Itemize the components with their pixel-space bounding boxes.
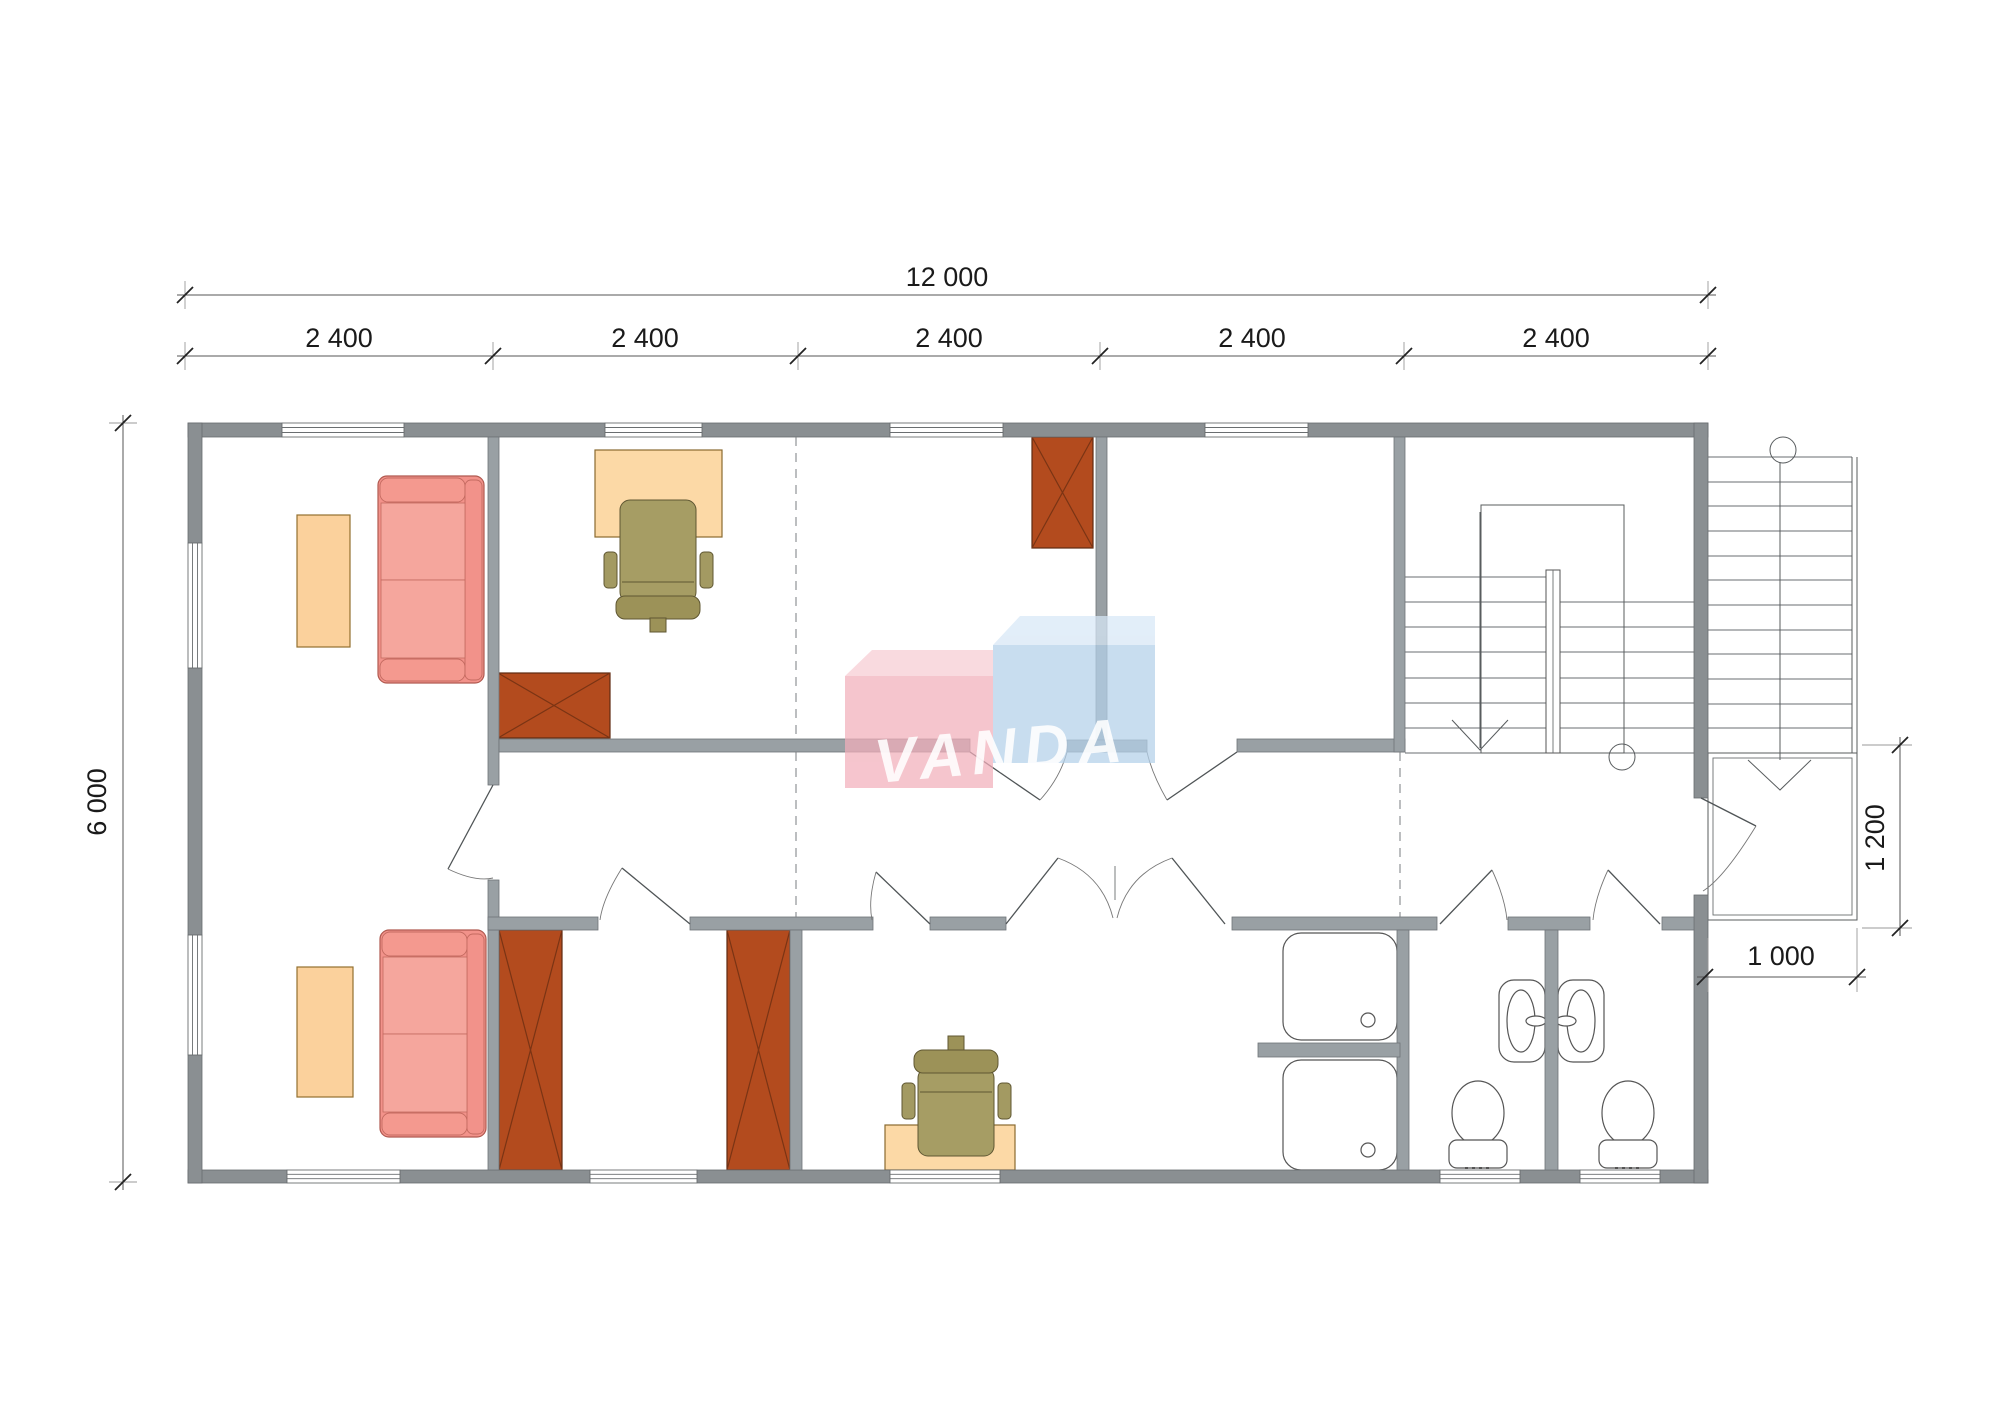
entry-landing xyxy=(1708,753,1857,920)
internal-staircase xyxy=(1405,505,1694,770)
vanda-watermark: VANDA xyxy=(845,616,1155,797)
dim-label-module-1: 2 400 xyxy=(305,323,373,353)
external-stair-reference-circle xyxy=(1770,437,1796,463)
wardrobe-top-middle xyxy=(1032,437,1093,548)
toilet-left xyxy=(1449,1081,1507,1168)
door-bottom-left-room xyxy=(600,868,690,924)
dimension-landing-width: 1 000 xyxy=(1697,928,1866,992)
external-staircase xyxy=(1708,437,1857,790)
sofa-bottom xyxy=(380,930,486,1137)
floor-plan-canvas: VANDA 12 000 2 400 2 400 2 400 2 400 2 4… xyxy=(0,0,2000,1423)
door-bottom-middle-room xyxy=(871,872,930,924)
external-stair-down-arrow xyxy=(1748,760,1811,790)
dimension-overall-width: 12 000 xyxy=(177,262,1716,309)
shower-partition xyxy=(1258,1043,1400,1057)
toilet-right xyxy=(1599,1081,1657,1168)
dim-label-module-4: 2 400 xyxy=(1218,323,1286,353)
window-icon xyxy=(188,935,202,1055)
door-living-room xyxy=(448,785,493,879)
window-icon xyxy=(1205,423,1308,437)
dim-label-module-3: 2 400 xyxy=(915,323,983,353)
shower-tray-top xyxy=(1283,933,1397,1040)
door-top-middle-room xyxy=(1147,752,1237,800)
dim-label-landing-depth: 1 200 xyxy=(1860,804,1890,872)
window-icon xyxy=(1580,1170,1660,1183)
dim-label-module-5: 2 400 xyxy=(1522,323,1590,353)
wardrobe-bottom-right xyxy=(727,930,790,1170)
door-wc-left xyxy=(1440,870,1507,924)
door-wc-right xyxy=(1593,870,1660,924)
sofa-top xyxy=(378,476,484,683)
dim-label-overall-height: 6 000 xyxy=(82,768,112,836)
window-icon xyxy=(605,423,702,437)
wardrobe-bottom-left xyxy=(499,930,562,1170)
shower-tray-bottom xyxy=(1283,1060,1397,1170)
window-icon xyxy=(1440,1170,1520,1183)
coffee-table-bottom xyxy=(297,967,353,1097)
double-door-shower-room xyxy=(1006,858,1225,924)
dim-label-overall-width: 12 000 xyxy=(906,262,989,292)
dimension-modules: 2 400 2 400 2 400 2 400 2 400 xyxy=(177,323,1716,370)
dim-label-landing-width: 1 000 xyxy=(1747,941,1815,971)
window-icon xyxy=(890,1170,1000,1183)
doors xyxy=(448,752,1756,924)
window-icon xyxy=(282,423,404,437)
floor-plan-page: VANDA 12 000 2 400 2 400 2 400 2 400 2 4… xyxy=(0,0,2000,1423)
window-icon xyxy=(188,543,202,668)
coffee-table-top xyxy=(297,515,350,647)
wardrobe-office xyxy=(498,673,610,738)
window-icon xyxy=(590,1170,697,1183)
dim-label-module-2: 2 400 xyxy=(611,323,679,353)
entry-door xyxy=(1701,798,1756,891)
window-icon xyxy=(287,1170,400,1183)
dimension-overall-height: 6 000 xyxy=(82,415,137,1190)
stair-reference-circle xyxy=(1609,744,1635,770)
dimension-landing-depth: 1 200 xyxy=(1860,737,1912,936)
window-icon xyxy=(890,423,1003,437)
